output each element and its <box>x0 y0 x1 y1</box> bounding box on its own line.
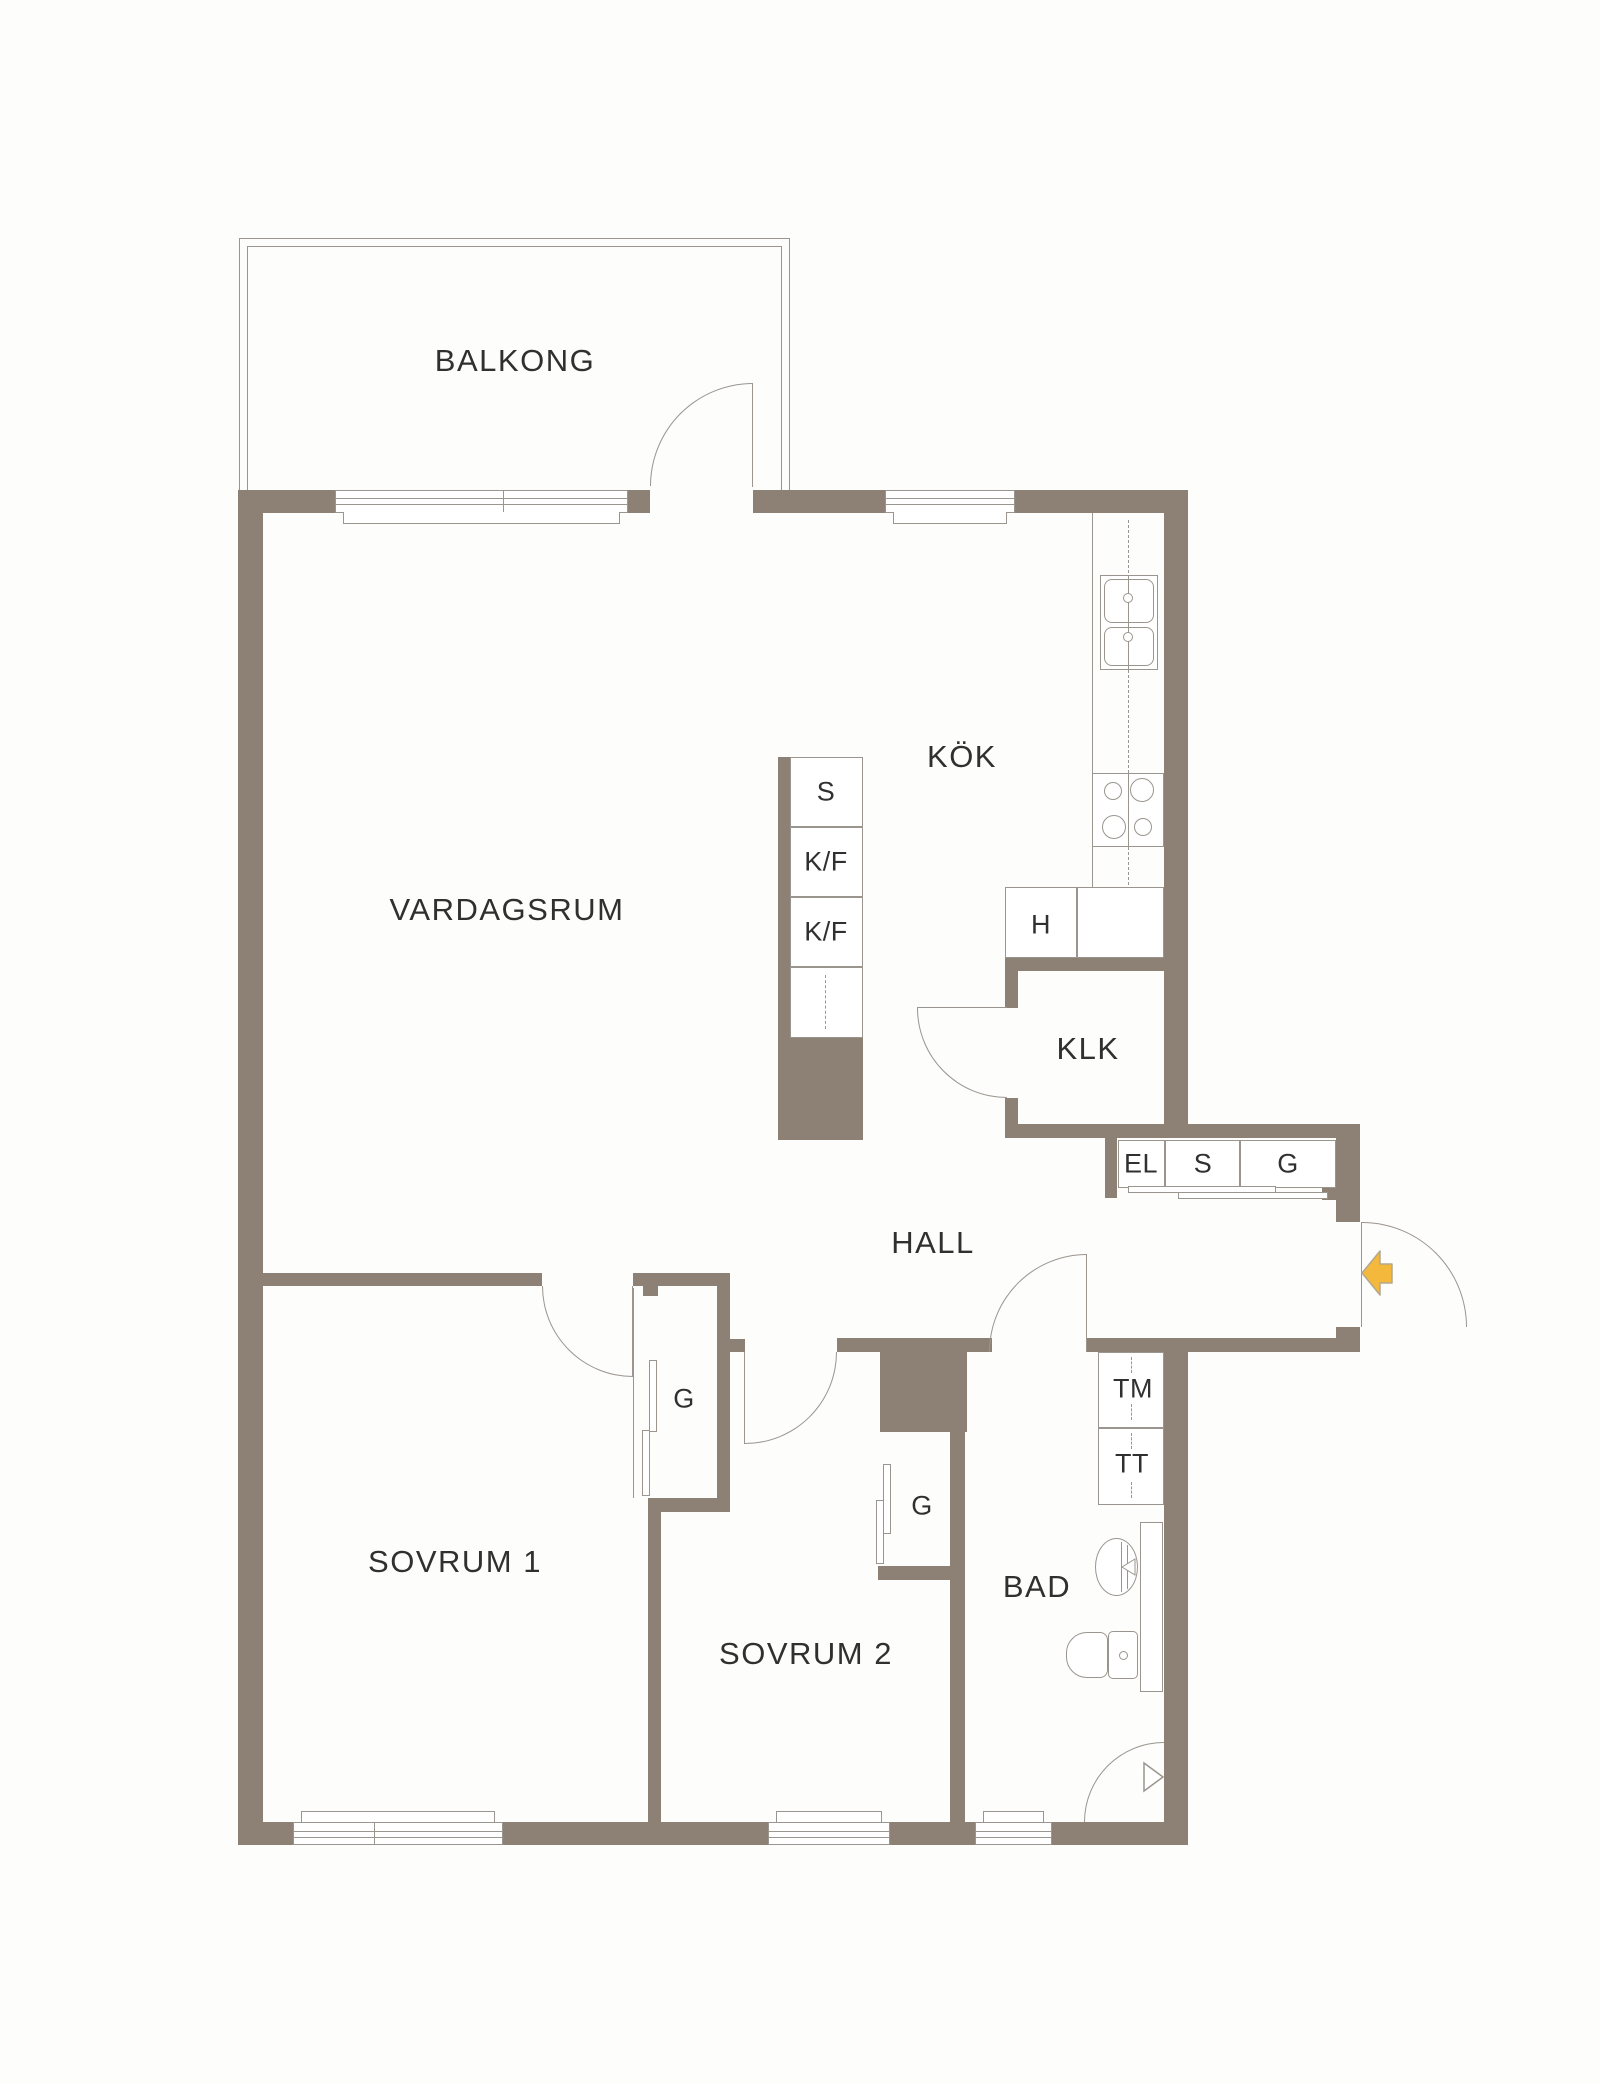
fixture-label-cleaning: S <box>817 777 836 808</box>
wall <box>730 1339 745 1352</box>
fixture-label-fridge: K/F <box>804 917 848 948</box>
shower-corner-icon <box>1084 1742 1164 1822</box>
closet-front-line <box>633 1288 634 1498</box>
folding-door-icon <box>883 1464 891 1534</box>
wall <box>1052 1822 1188 1845</box>
fixture-label-cleaning: S <box>1194 1149 1213 1180</box>
wall <box>778 757 790 1038</box>
fixture-label-wardrobe: G <box>673 1384 695 1415</box>
folding-door-icon <box>642 1430 650 1496</box>
wall <box>778 1038 863 1140</box>
wall <box>1336 1138 1360 1222</box>
wall <box>880 1338 967 1432</box>
burner-icon <box>1104 782 1122 800</box>
room-label-bedroom1: SOVRUM 1 <box>368 1544 542 1580</box>
wall <box>633 1273 730 1286</box>
window-sill <box>893 512 1007 524</box>
room-label-bedroom2: SOVRUM 2 <box>719 1636 893 1672</box>
fixture-label-dryer: TT <box>1115 1449 1149 1480</box>
appliance-centerline <box>1131 1433 1132 1449</box>
wall <box>1005 958 1018 1008</box>
wall <box>1164 1352 1188 1845</box>
folding-door-icon <box>876 1500 884 1564</box>
stove-centerline <box>1128 773 1129 847</box>
counter-section <box>1077 887 1164 958</box>
fixture-label-hob: H <box>1031 910 1051 941</box>
wall <box>717 1273 730 1512</box>
wall <box>890 1822 975 1845</box>
window <box>335 490 628 513</box>
wall <box>503 1822 768 1845</box>
window <box>768 1822 890 1845</box>
fixture-label-wardrobe: G <box>911 1491 933 1522</box>
wall <box>238 1822 293 1845</box>
wall <box>1087 1338 1360 1352</box>
wall <box>628 490 650 513</box>
sink-centerline <box>1128 575 1129 670</box>
toilet-icon <box>1066 1632 1108 1678</box>
door-leaf <box>744 1352 745 1444</box>
wall <box>238 490 335 513</box>
room-label-living: VARDAGSRUM <box>390 892 625 928</box>
sliding-door-icon <box>1178 1192 1328 1199</box>
window <box>885 490 1015 513</box>
burner-icon <box>1134 818 1152 836</box>
wall <box>1015 490 1188 513</box>
fixture-label-washer: TM <box>1113 1374 1153 1405</box>
wall <box>837 1338 880 1352</box>
window-sill <box>343 512 620 524</box>
room-label-kitchen: KÖK <box>927 739 997 775</box>
wall <box>878 1566 953 1580</box>
wall <box>1005 1098 1018 1126</box>
burner-icon <box>1130 778 1154 802</box>
room-label-klk: KLK <box>1056 1031 1119 1067</box>
entry-door-leaf <box>1361 1222 1362 1327</box>
wall <box>1164 490 1188 1138</box>
door-swing-arc <box>989 1254 1087 1352</box>
wall <box>238 490 263 1845</box>
door-leaf <box>752 383 753 487</box>
cabinet-divider <box>825 975 826 1029</box>
wall <box>950 1432 965 1822</box>
fixture-label-fridge: K/F <box>804 847 848 878</box>
cabinet-box <box>790 967 863 1038</box>
window <box>975 1822 1052 1845</box>
wall <box>1105 1138 1117 1198</box>
washbasin-icon <box>1095 1538 1138 1596</box>
room-label-balcony: BALKONG <box>435 343 595 379</box>
door-leaf <box>1086 1254 1087 1352</box>
sink-drain-icon <box>1123 632 1133 642</box>
room-label-bathroom: BAD <box>1003 1569 1071 1605</box>
window <box>293 1822 503 1845</box>
appliance-centerline <box>1131 1482 1132 1498</box>
wall <box>1005 958 1164 971</box>
door-swing-arc <box>917 1008 1007 1098</box>
door-leaf <box>917 1007 1007 1008</box>
vanity-counter <box>1140 1522 1163 1692</box>
wall <box>753 490 885 513</box>
toilet-button <box>1119 1651 1128 1660</box>
wall <box>965 1338 992 1352</box>
floor-plan: BALKONG VARDAGSRUM KÖK KLK HALL SOVRUM 1… <box>0 0 1600 2084</box>
appliance-centerline <box>1131 1404 1132 1420</box>
wall <box>1005 1124 1360 1138</box>
entry-door-swing-arc <box>1362 1222 1467 1327</box>
wall <box>263 1273 542 1286</box>
wall <box>648 1498 661 1822</box>
room-label-hall: HALL <box>891 1225 975 1261</box>
folding-door-icon <box>649 1360 657 1432</box>
door-swing-arc <box>542 1286 633 1377</box>
burner-icon <box>1102 815 1126 839</box>
fixture-label-electrical: EL <box>1124 1149 1158 1180</box>
sink-drain-icon <box>1123 593 1133 603</box>
washbasin-line <box>1121 1542 1122 1592</box>
wall <box>643 1286 658 1296</box>
fixture-label-wardrobe: G <box>1277 1149 1299 1180</box>
washbasin-line <box>1127 1545 1128 1589</box>
door-swing-arc <box>745 1352 837 1444</box>
appliance-centerline <box>1131 1357 1132 1373</box>
